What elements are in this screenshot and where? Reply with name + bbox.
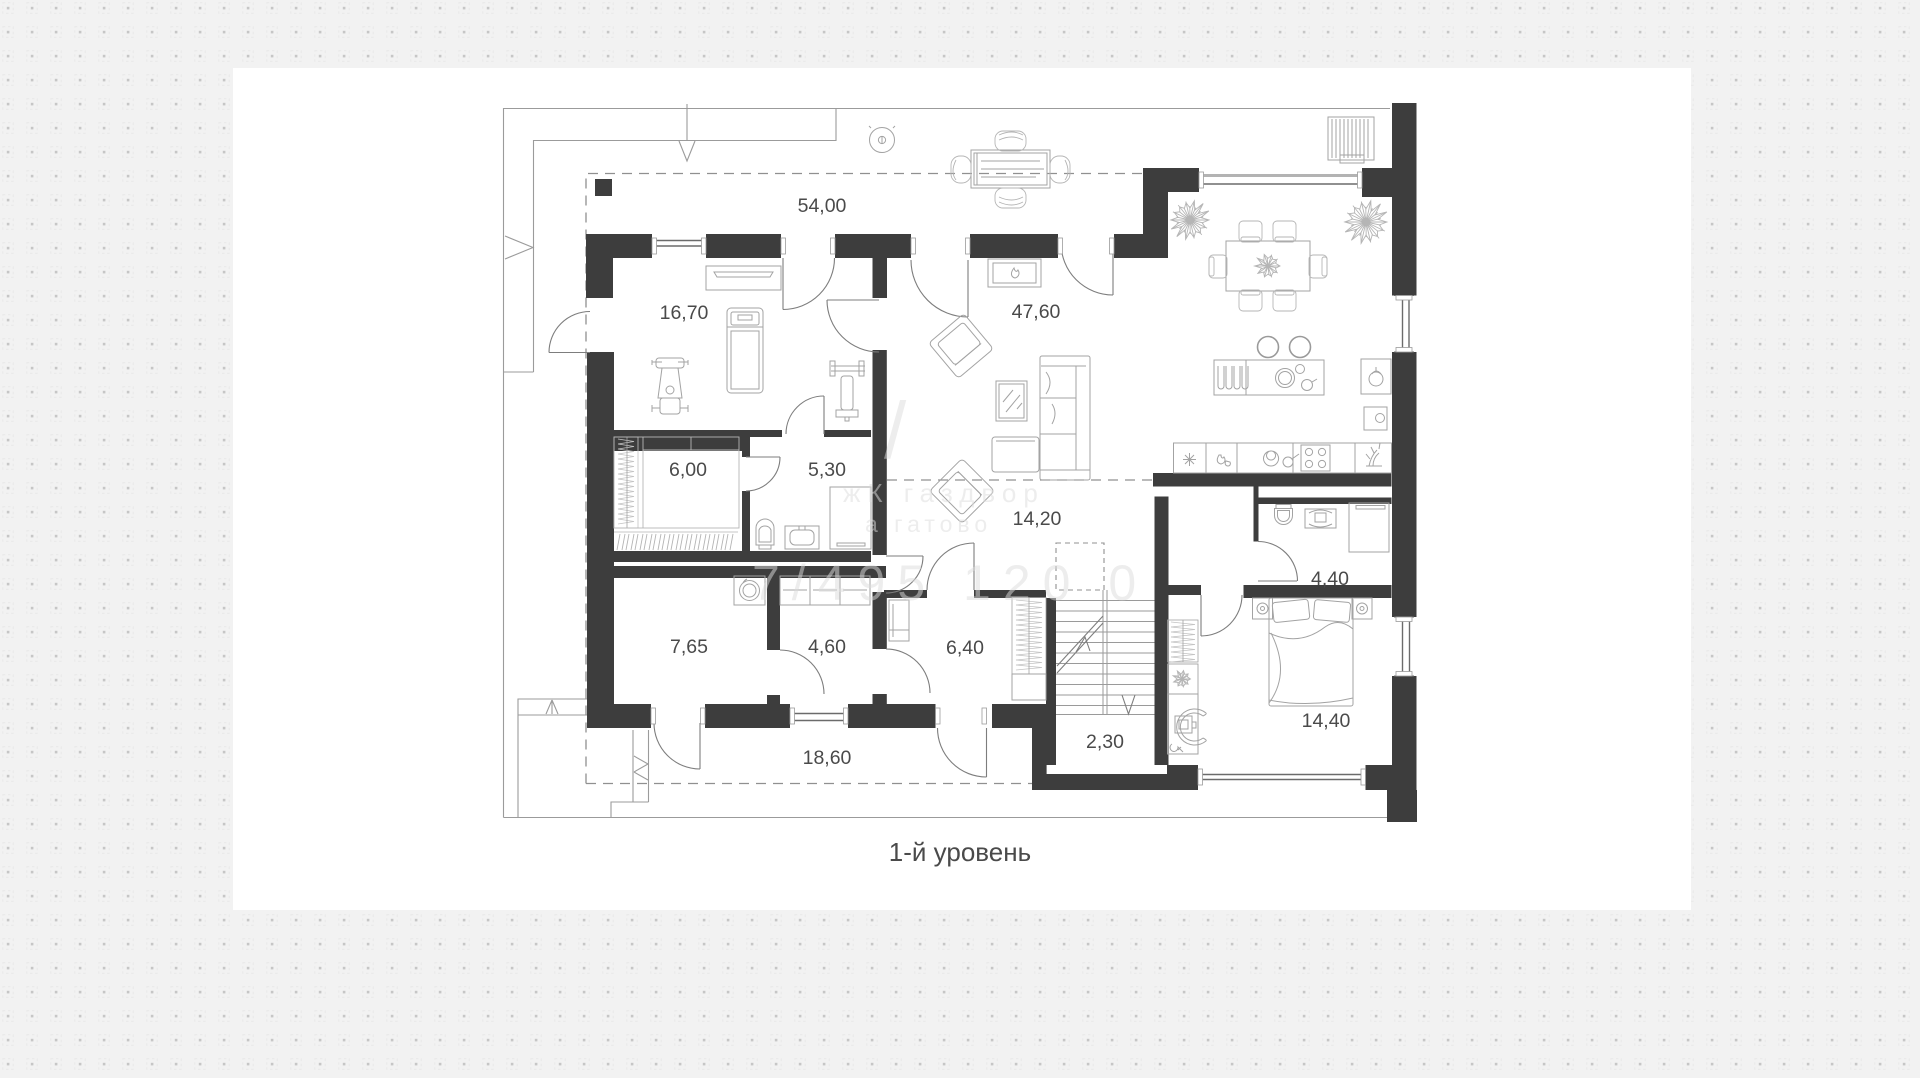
svg-text:14,20: 14,20 bbox=[1013, 508, 1062, 530]
svg-text:4,60: 4,60 bbox=[808, 636, 846, 658]
svg-text:7,65: 7,65 bbox=[670, 636, 708, 658]
svg-text:6,00: 6,00 bbox=[669, 459, 707, 481]
svg-text:16,70: 16,70 bbox=[660, 302, 709, 324]
svg-text:4,40: 4,40 bbox=[1311, 568, 1349, 590]
svg-text:47,60: 47,60 bbox=[1012, 301, 1061, 323]
svg-text:5,30: 5,30 bbox=[808, 459, 846, 481]
svg-text:2,30: 2,30 bbox=[1086, 731, 1124, 753]
svg-text:7/495 120 0: 7/495 120 0 bbox=[752, 555, 1148, 611]
svg-text:6,40: 6,40 bbox=[946, 637, 984, 659]
svg-text:а гатово: а гатово bbox=[865, 511, 992, 537]
svg-text:18,60: 18,60 bbox=[803, 747, 852, 769]
svg-text:14,40: 14,40 bbox=[1302, 710, 1351, 732]
svg-text:1-й уровень: 1-й уровень bbox=[889, 837, 1031, 867]
svg-text:54,00: 54,00 bbox=[798, 195, 847, 217]
svg-text:жК газдвор: жК газдвор bbox=[843, 478, 1045, 508]
svg-text:/: / bbox=[884, 386, 907, 475]
